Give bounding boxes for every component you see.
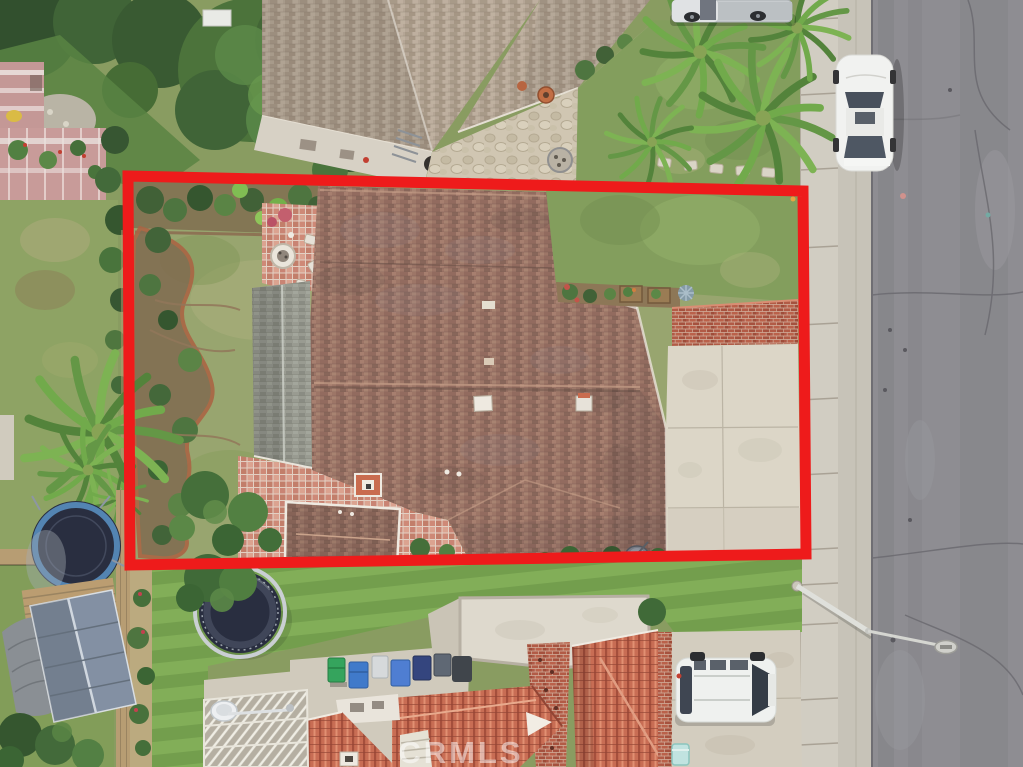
aerial-photo: CRMLS	[0, 0, 1023, 767]
watermark: CRMLS	[398, 735, 523, 767]
